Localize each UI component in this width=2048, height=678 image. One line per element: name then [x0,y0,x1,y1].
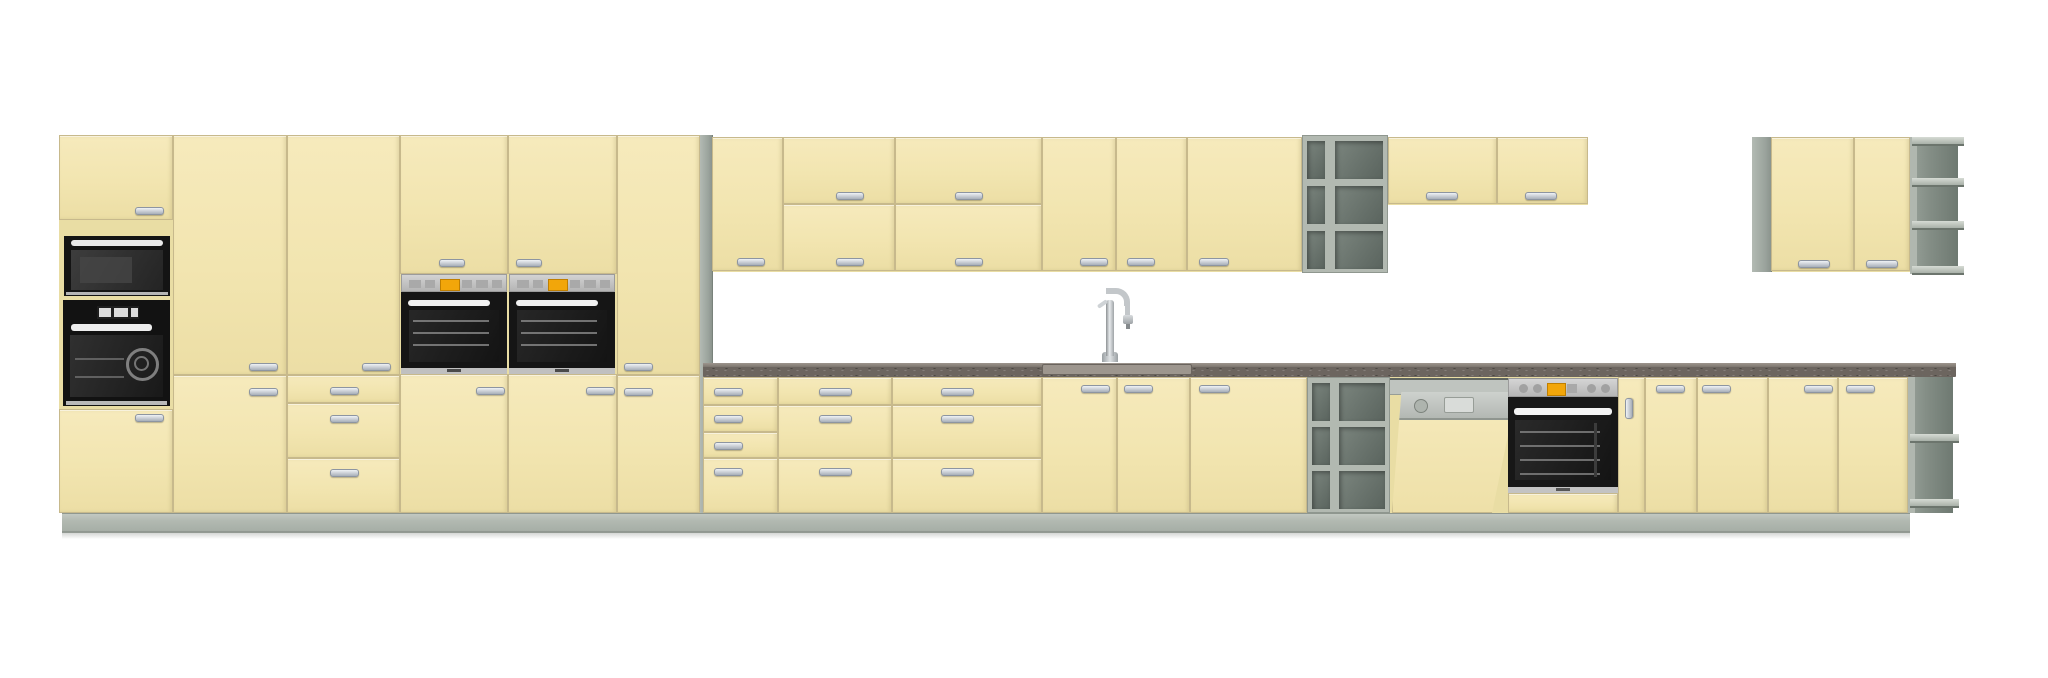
tall1-bottom-door[interactable] [59,409,173,513]
built-in-oven-mid-2-button-0 [517,280,529,288]
wall3-bottom-door-handle [955,258,983,266]
base3-drawer-3-handle [941,468,974,476]
base2-drawer-2-handle [819,415,852,423]
countertop[interactable] [703,363,1956,377]
built-in-oven-mid-2-button-2 [570,280,580,288]
base8-door-handle [1846,385,1875,393]
wall2-top-door-handle [836,192,864,200]
tall6-door[interactable] [617,135,700,375]
far-wall-corner-shelf-frame [1910,137,1917,274]
oven2-top-door-handle [516,259,542,267]
wall4-door-handle [1080,258,1108,266]
built-in-oven-mid-2-display [548,279,568,291]
built-in-oven-mid-1-button-2 [462,280,472,288]
countertop-top-edge [703,363,1956,367]
wall6-door[interactable] [1187,137,1302,271]
base3-drawer-1-handle [941,388,974,396]
dishwasher-door[interactable] [1392,392,1517,513]
base-filler-door[interactable] [1618,377,1645,513]
dishwasher[interactable] [1390,377,1520,513]
tall-oven-trim [66,401,167,405]
wall8-door-handle [1525,192,1557,200]
wall-open-shelf-unit-cell-10 [1335,141,1383,180]
wall-open-shelf-unit-cell-00 [1307,141,1325,180]
microwave[interactable] [64,236,170,296]
far-wall-door-2[interactable] [1854,137,1910,271]
built-in-oven-base-rack-2 [1520,459,1600,461]
tall3-door[interactable] [287,135,400,375]
tall-oven-display-0 [99,308,111,317]
far-wall-corner-shelf-shelf-1 [1912,178,1964,187]
tall3-drawer-3[interactable] [287,458,400,513]
built-in-oven-base-knob-1 [1533,384,1542,393]
base-open-shelf-unit-cell-00 [1312,383,1329,421]
built-in-oven-mid-1-vent [447,369,461,372]
built-in-oven-mid-2-button-1 [533,280,543,288]
tall1-top-door-handle [135,207,164,215]
built-in-oven-mid-1-button-1 [425,280,435,288]
base-open-shelf-unit-cell-10 [1339,383,1385,421]
built-in-oven-mid-1-glass [409,310,499,362]
oven2-lower-door-handle [586,387,615,395]
built-in-oven-mid-2-rack-1 [521,332,597,334]
tall-oven-display-1 [114,308,128,317]
built-in-oven-mid-1-control-panel [401,274,507,292]
base1-drawer-2-handle [714,415,743,423]
wall5-door-handle [1127,258,1155,266]
faucet-spray-tip [1126,324,1130,329]
built-in-oven-mid-2[interactable] [509,274,615,374]
far-wall-corner-shelf-shelf-3 [1912,266,1964,275]
built-in-oven-base-rack-1 [1520,445,1600,447]
base2-drawer-1-handle [819,388,852,396]
faucet-column [1106,300,1114,356]
built-in-oven-mid-2-control-panel [509,274,615,292]
dishwasher-latch [1444,397,1474,413]
base-open-shelf-unit-cell-12 [1339,471,1385,509]
kitchen-render-canvas [0,0,2048,678]
built-in-oven-mid-1-button-3 [476,280,488,288]
tall3-drawer-2[interactable] [287,403,400,458]
base-open-shelf-unit-cell-01 [1312,427,1329,465]
tall6-door-handle [624,363,653,371]
wall4-door[interactable] [1042,137,1116,271]
built-in-oven-mid-1[interactable] [401,274,507,374]
built-in-oven-base-button [1567,384,1577,393]
microwave-screen [80,257,132,283]
base4-door[interactable] [1190,377,1307,513]
tall-oven-rack-0 [75,358,124,360]
built-in-oven-base-rack-3 [1520,473,1600,475]
base1-drawer-3-handle [714,442,743,450]
tall3-drawer-1-handle [330,387,359,395]
oven1-lower-door-handle [476,387,505,395]
wall2-bottom-door-handle [836,258,864,266]
base6-door[interactable] [1697,377,1768,513]
base-corner-shelf-frame [1908,377,1915,513]
built-in-oven-base-knob-3 [1601,384,1610,393]
built-in-oven-mid-2-glass [517,310,607,362]
faucet[interactable] [1096,286,1136,364]
base5-door[interactable] [1645,377,1697,513]
sink-base-door-left-handle [1081,385,1110,393]
built-in-oven-base-rail [1594,423,1597,477]
built-in-oven-mid-2-button-3 [584,280,596,288]
base-filler-door-handle [1625,398,1633,419]
faucet-spray-head [1123,315,1133,324]
tall-oven[interactable] [63,300,170,406]
built-in-oven-mid-1-button-0 [409,280,421,288]
tall2-lower-door-handle [249,388,278,396]
base-corner-shelf-shelf-1 [1910,499,1959,508]
built-in-oven-base-handle-bar [1514,408,1612,415]
microwave-trim [66,292,168,295]
base5-door-handle [1656,385,1685,393]
tall-oven-display-2 [131,308,138,317]
base1-drawer-4-handle [714,468,743,476]
far-wall-door-2-handle [1866,260,1898,268]
built-in-oven-base-knob-2 [1587,384,1596,393]
far-wall-side-panel [1752,137,1772,272]
built-in-oven-mid-1-display [440,279,460,291]
floor-shadow [62,531,1910,539]
microwave-handle-bar [71,240,163,246]
base-open-shelf-unit[interactable] [1307,377,1390,513]
base-corner-shelf[interactable] [1908,377,1953,513]
base3-drawer-2-handle [941,415,974,423]
oven2-top-door[interactable] [508,135,617,274]
wall-open-shelf-unit-cell-01 [1307,186,1325,225]
built-in-oven-mid-1-rack-0 [413,320,489,322]
far-wall-door-1[interactable] [1771,137,1854,271]
plinth [62,513,1910,533]
tall-oven-handle-bar [71,324,152,331]
base-open-shelf-unit-cell-02 [1312,471,1329,509]
wall-open-shelf-unit[interactable] [1302,135,1388,273]
built-in-oven-mid-2-vent [555,369,569,372]
base3-drawer-3[interactable] [892,458,1042,513]
built-in-oven-mid-2-rack-0 [521,320,597,322]
base7-door-handle [1804,385,1833,393]
wall1-door[interactable] [712,137,783,271]
far-wall-corner-shelf[interactable] [1910,137,1958,274]
sink-base-door-right[interactable] [1117,377,1190,513]
tall3-drawer-2-handle [330,415,359,423]
sink-basin[interactable] [1042,364,1192,375]
built-in-oven-mid-2-rack-2 [521,344,597,346]
tall6-lower-door-handle [624,388,653,396]
built-in-oven-mid-1-rack-1 [413,332,489,334]
built-in-oven-mid-1-handle-bar [408,300,490,306]
built-in-oven-base-control-panel [1508,378,1618,397]
base1-drawer-4[interactable] [703,458,778,513]
built-in-oven-mid-2-button-4 [600,280,610,288]
built-in-oven-base-bottom-front [1508,493,1618,513]
tall-oven-fan-hub [134,356,149,371]
base8-door[interactable] [1838,377,1908,513]
wall5-door[interactable] [1116,137,1187,271]
built-in-oven-base[interactable] [1508,377,1618,513]
base1-drawer-1-handle [714,388,743,396]
base-open-shelf-unit-cell-11 [1339,427,1385,465]
built-in-oven-mid-1-button-4 [492,280,502,288]
base2-drawer-3-handle [819,468,852,476]
far-wall-corner-shelf-shelf-2 [1912,221,1964,230]
base4-door-handle [1199,385,1230,393]
far-wall-door-1-handle [1798,260,1830,268]
tall2-door-handle [249,363,278,371]
oven1-top-door[interactable] [400,135,508,274]
tall3-door-handle [362,363,391,371]
built-in-oven-mid-1-rack-2 [413,344,489,346]
base2-drawer-2[interactable] [778,405,892,458]
tall3-drawer-3-handle [330,469,359,477]
dishwasher-knob [1414,399,1428,413]
sink-base-door-right-handle [1124,385,1153,393]
wall-open-shelf-unit-cell-02 [1307,231,1325,270]
far-wall-corner-shelf-shelf-0 [1912,137,1964,146]
wall-open-shelf-unit-cell-12 [1335,231,1383,270]
wall-open-shelf-unit-cell-11 [1335,186,1383,225]
built-in-oven-base-display [1547,383,1566,396]
sink-base-door-left[interactable] [1042,377,1117,513]
wall1-door-handle [737,258,765,266]
built-in-oven-base-knob-0 [1519,384,1528,393]
built-in-oven-mid-2-handle-bar [516,300,598,306]
base2-drawer-3[interactable] [778,458,892,513]
base3-drawer-2[interactable] [892,405,1042,458]
wall7-door-handle [1426,192,1458,200]
base6-door-handle [1702,385,1731,393]
wall3-top-door-handle [955,192,983,200]
wall6-door-handle [1199,258,1229,266]
base7-door[interactable] [1768,377,1838,513]
built-in-oven-base-vent [1556,488,1570,491]
tall2-door[interactable] [173,135,287,375]
base-corner-shelf-shelf-0 [1910,434,1959,443]
tall1-bottom-door-handle [135,414,164,422]
built-in-oven-base-rack-0 [1520,431,1600,433]
oven1-top-door-handle [439,259,465,267]
tall-oven-rack-1 [75,376,124,378]
